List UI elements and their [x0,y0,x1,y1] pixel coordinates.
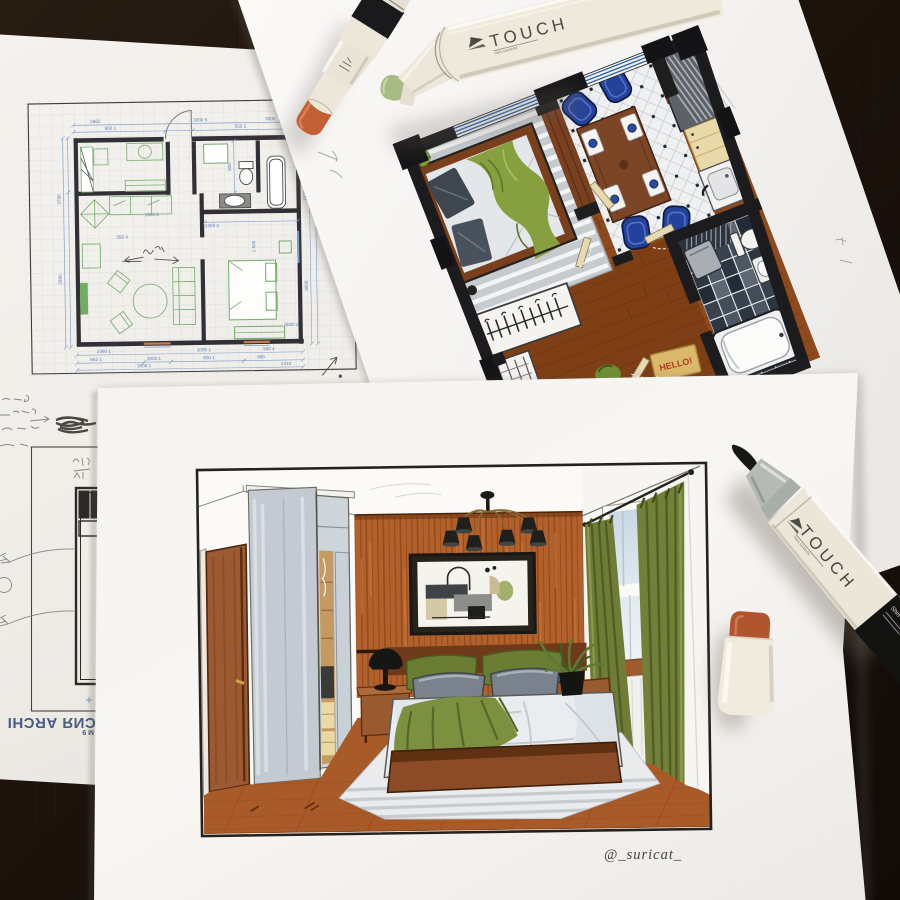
svg-text:350 4: 350 4 [116,234,128,239]
svg-text:1 500: 1 500 [251,240,256,252]
svg-text:2410: 2410 [281,361,292,366]
svg-text:3000: 3000 [304,280,309,291]
svg-text:3000 1: 3000 1 [147,356,162,361]
svg-text:2980: 2980 [58,274,63,285]
svg-text:3000 2: 3000 2 [284,322,299,327]
svg-text:1350 2: 1350 2 [205,223,220,228]
svg-text:2662: 2662 [90,119,101,124]
svg-text:1004 3: 1004 3 [145,212,160,217]
svg-text:900 1: 900 1 [203,355,215,360]
svg-text:3000 5: 3000 5 [193,117,208,122]
svg-text:990 4: 990 4 [263,346,275,351]
svg-text:862 1: 862 1 [90,357,102,362]
svg-text:1000 1: 1000 1 [197,347,212,352]
svg-text:2460 1: 2460 1 [97,349,112,354]
svg-text:960 1: 960 1 [105,126,117,131]
svg-text:3780: 3780 [56,194,61,205]
svg-text:960: 960 [257,354,265,359]
svg-text:3000 1: 3000 1 [137,363,152,368]
svg-text:800: 800 [227,163,232,171]
svg-text:550 2: 550 2 [235,124,247,129]
svg-text:@_suricat_: @_suricat_ [604,847,682,863]
